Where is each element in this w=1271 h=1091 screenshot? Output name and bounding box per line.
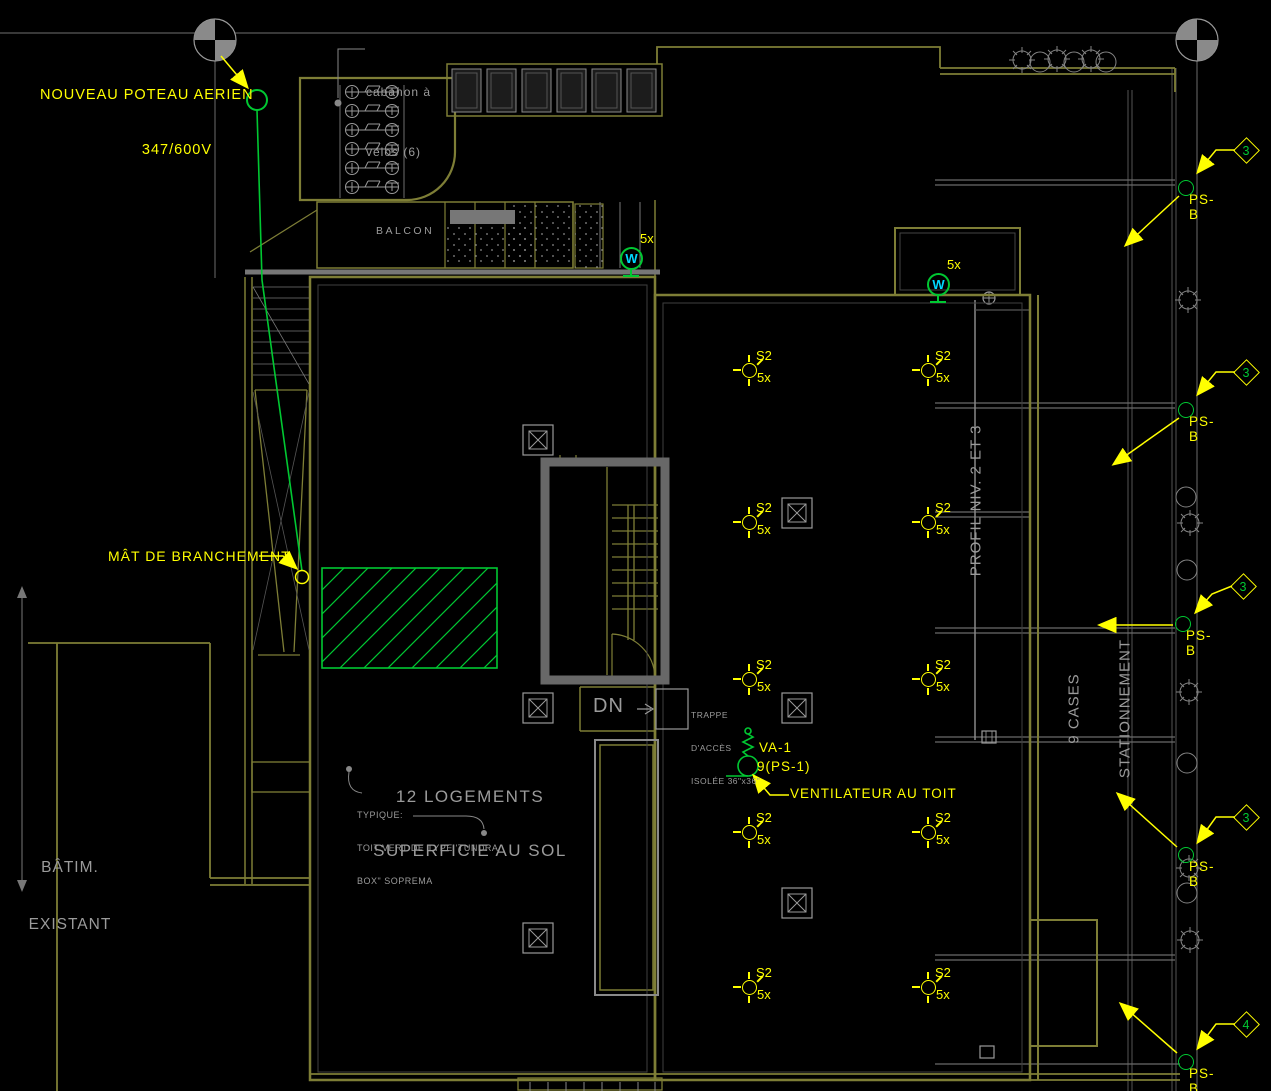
service-feed-line bbox=[257, 110, 302, 571]
fixture-type-label: S2 bbox=[756, 657, 772, 672]
fixture-circle-icon bbox=[921, 363, 936, 378]
keynote-number: 3 bbox=[1232, 576, 1254, 598]
keynote-diamond-icon: 4 bbox=[1235, 1013, 1257, 1035]
psb-label: PS-B bbox=[1189, 859, 1215, 889]
outlet-count-label: 5x bbox=[947, 257, 961, 272]
outlet-count-label: 5x bbox=[640, 231, 654, 246]
outlet-letter: W bbox=[620, 247, 643, 270]
fixture-count-label: 5x bbox=[936, 679, 950, 694]
existing-building-label: BÂTIM. EXISTANT bbox=[20, 820, 120, 953]
access-hatch-note: TRAPPE D'ACCÈS ISOLÉE 36"x36" bbox=[691, 688, 760, 798]
fixture-count-label: 5x bbox=[936, 832, 950, 847]
fixture-circle-icon bbox=[742, 672, 757, 687]
fixture-type-label: S2 bbox=[935, 657, 951, 672]
fixture-type-label: S2 bbox=[935, 348, 951, 363]
psb-label: PS-B bbox=[1186, 628, 1212, 658]
fixture-count-label: 5x bbox=[757, 522, 771, 537]
yellow-leaders bbox=[221, 56, 1235, 1053]
fixture-type-label: S2 bbox=[756, 500, 772, 515]
fixture-type-label: S2 bbox=[935, 500, 951, 515]
keynote-diamond-icon: 3 bbox=[1235, 806, 1257, 828]
green-roof-note: TYPIQUE: TOIT VERT DE TYPE 'TUNDRA BOX" … bbox=[357, 788, 498, 898]
fixture-circle-icon bbox=[921, 515, 936, 530]
fixture-circle-icon bbox=[742, 825, 757, 840]
fixture-count-label: 5x bbox=[757, 987, 771, 1002]
service-mast-label: MÂT DE BRANCHEMENT bbox=[108, 548, 291, 566]
keynote-number: 4 bbox=[1235, 1014, 1257, 1036]
fixture-count-label: 5x bbox=[757, 679, 771, 694]
fixture-type-label: S2 bbox=[756, 810, 772, 825]
fixture-type-label: S2 bbox=[935, 965, 951, 980]
keynote-diamond-icon: 3 bbox=[1232, 575, 1254, 597]
fixture-circle-icon bbox=[742, 515, 757, 530]
bike-shed-note: cabanon à vélos (6) bbox=[366, 42, 431, 182]
walls-and-details bbox=[17, 49, 1022, 1091]
fixture-circle-icon bbox=[921, 980, 936, 995]
parking-stalls-label: 9 CASES STATIONNEMENT bbox=[1032, 634, 1151, 784]
new-pole-note-line2: 347/600V bbox=[40, 141, 212, 159]
new-pole-note-line1: NOUVEAU POTEAU AERIEN bbox=[40, 86, 212, 104]
fixture-circle-icon bbox=[742, 980, 757, 995]
fan-tag: VA-1 bbox=[759, 740, 792, 757]
keynote-diamond-icon: 3 bbox=[1235, 361, 1257, 383]
fixture-circle-icon bbox=[742, 363, 757, 378]
pole-arrow bbox=[221, 56, 247, 87]
fixture-count-label: 5x bbox=[936, 987, 950, 1002]
roof-fan-label: VENTILATEUR AU TOIT bbox=[790, 786, 957, 803]
fixture-count-label: 5x bbox=[757, 370, 771, 385]
psb-label: PS-B bbox=[1189, 192, 1215, 222]
building-outlines bbox=[28, 47, 1180, 1091]
survey-target-icon bbox=[1176, 19, 1218, 61]
new-pole-note: NOUVEAU POTEAU AERIEN 347/600V bbox=[40, 50, 212, 177]
outlet-letter: W bbox=[927, 273, 950, 296]
fixture-count-label: 5x bbox=[936, 522, 950, 537]
fixture-type-label: S2 bbox=[756, 348, 772, 363]
fixture-circle-icon bbox=[921, 825, 936, 840]
psb-label: PS-B bbox=[1189, 1066, 1215, 1091]
fixture-circle-icon bbox=[921, 672, 936, 687]
keynote-number: 3 bbox=[1235, 362, 1257, 384]
electrical-green bbox=[247, 90, 758, 776]
stair-down-label: DN bbox=[593, 694, 624, 719]
fan-circuit: 9(PS-1) bbox=[757, 759, 811, 776]
keynote-number: 3 bbox=[1235, 807, 1257, 829]
psb-label: PS-B bbox=[1189, 414, 1215, 444]
fixture-type-label: S2 bbox=[935, 810, 951, 825]
fixture-count-label: 5x bbox=[936, 370, 950, 385]
fixture-count-label: 5x bbox=[757, 832, 771, 847]
keynote-diamond-icon: 3 bbox=[1235, 139, 1257, 161]
keynote-number: 3 bbox=[1235, 140, 1257, 162]
cad-drawing-canvas[interactable]: NOUVEAU POTEAU AERIEN 347/600V cabanon à… bbox=[0, 0, 1271, 1091]
hatched-zone bbox=[322, 568, 497, 668]
balcony-label: BALCON bbox=[376, 225, 434, 238]
profile-level-label: PROFIL NIV. 2 ET 3 bbox=[968, 415, 987, 585]
storage-lockers bbox=[452, 69, 656, 112]
fixture-type-label: S2 bbox=[756, 965, 772, 980]
